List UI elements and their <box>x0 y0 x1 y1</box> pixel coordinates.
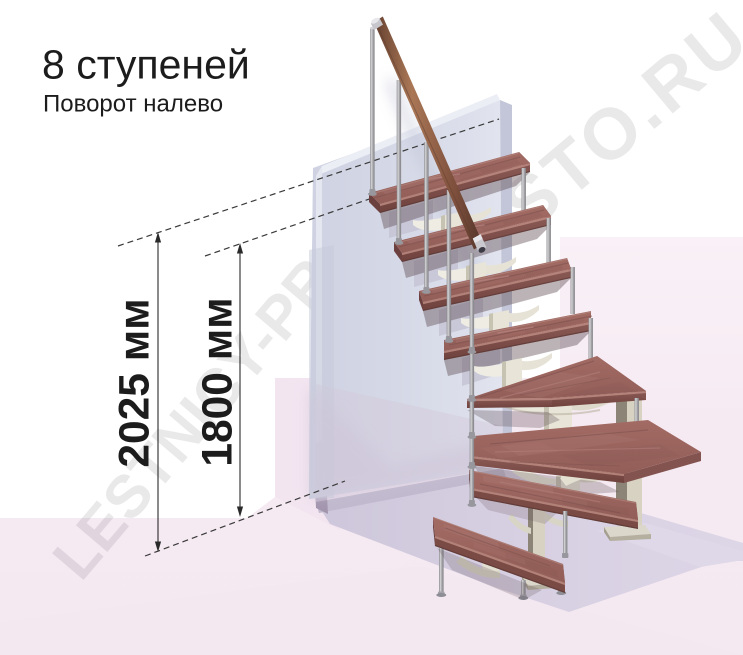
svg-text:1800 мм: 1800 мм <box>195 297 242 466</box>
svg-text:2025 мм: 2025 мм <box>112 298 159 467</box>
svg-text:8 ступеней: 8 ступеней <box>42 42 250 88</box>
svg-text:Поворот налево: Поворот налево <box>43 91 223 118</box>
